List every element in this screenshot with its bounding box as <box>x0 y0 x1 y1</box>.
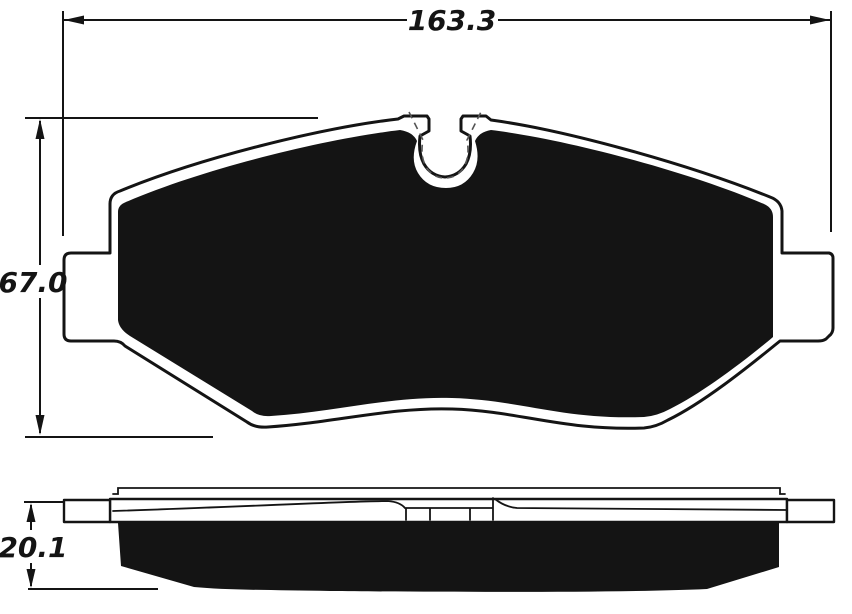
friction-material-side <box>118 523 779 592</box>
left-ear-side <box>64 500 110 522</box>
brake-pad-dimension-drawing: 163.3 67.0 <box>0 0 852 614</box>
height-arrow-down <box>36 415 45 435</box>
width-arrow-left <box>64 16 84 25</box>
brake-pad-diagram-canvas: 163.3 67.0 <box>0 0 852 614</box>
thickness-arrow-up <box>27 503 36 522</box>
backing-plate-side <box>110 499 787 522</box>
thickness-dimension-label: 20.1 <box>0 531 68 564</box>
friction-material-front <box>118 130 773 417</box>
thickness-arrow-down <box>27 569 36 588</box>
shim-strip <box>113 488 785 494</box>
brake-pad-side-view <box>64 488 834 592</box>
height-dimension-label: 67.0 <box>0 266 68 299</box>
brake-pad-front-view <box>64 112 833 428</box>
width-dimension-label: 163.3 <box>408 4 497 37</box>
right-ear-side <box>787 500 834 522</box>
height-arrow-up <box>36 119 45 139</box>
width-arrow-right <box>810 16 830 25</box>
